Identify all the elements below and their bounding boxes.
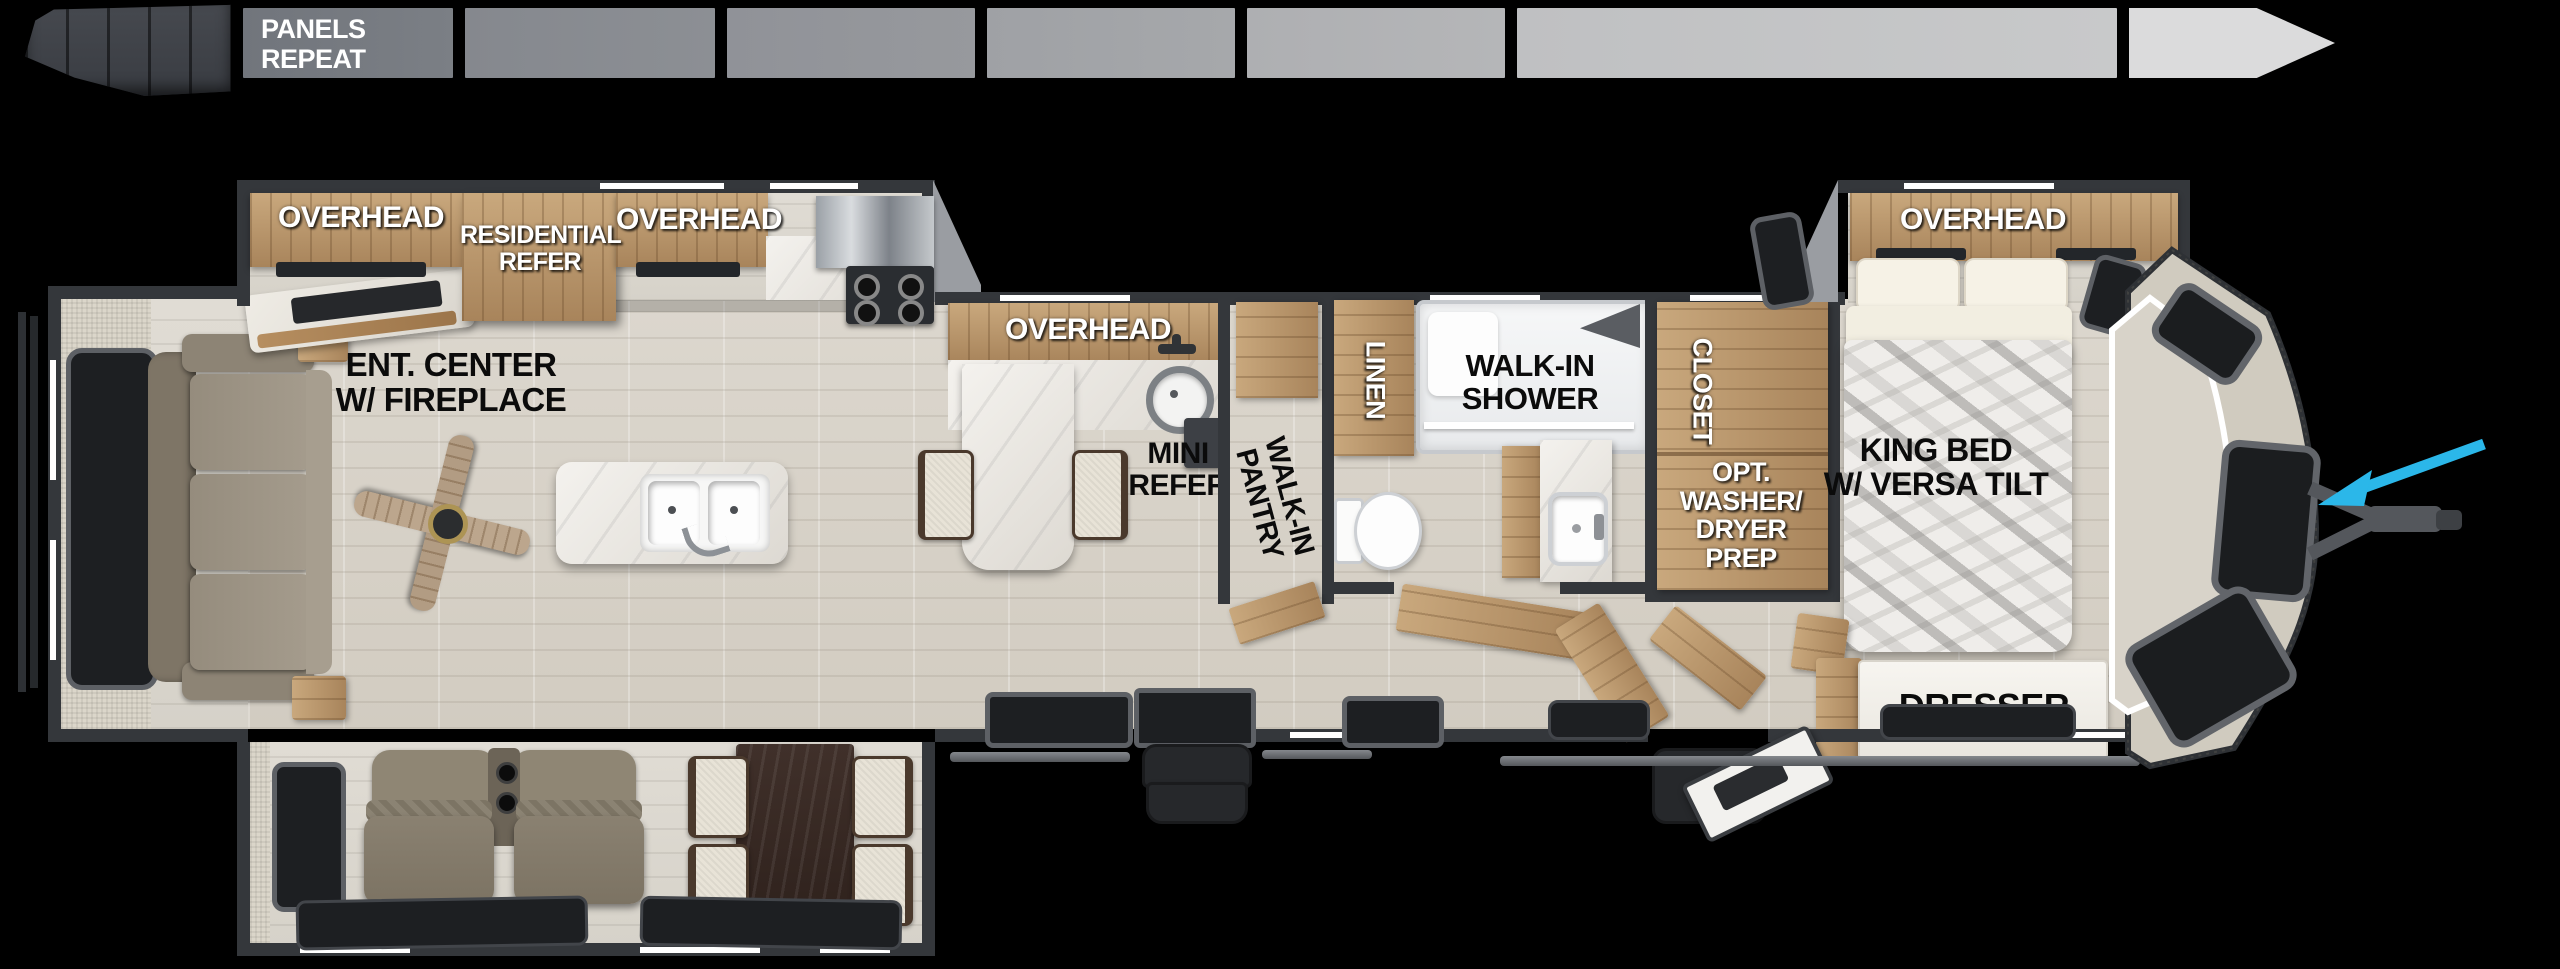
bath-wall-bottom <box>1322 582 1394 594</box>
entry-door-open <box>1681 725 1835 844</box>
walk-in-shower-label: WALK-IN SHOWER <box>1424 350 1636 416</box>
awning-bar <box>1500 756 2140 766</box>
cabinet-slot <box>276 262 426 277</box>
bed-pillow <box>1964 258 2068 312</box>
rear-wall-left <box>48 286 61 742</box>
closet-label-wrap: CLOSET <box>1676 316 1728 466</box>
wall-trim <box>640 947 760 953</box>
burner <box>898 274 924 300</box>
rear-window <box>66 348 158 690</box>
banner-segment <box>987 8 1235 78</box>
banner-segment <box>1517 8 2117 78</box>
banner-segment <box>1247 8 1505 78</box>
shower-glass <box>1424 422 1634 429</box>
closet-wall-bottom <box>1645 590 1840 602</box>
wall-trim <box>1000 295 1130 301</box>
ent-center-label: ENT. CENTER W/ FIREPLACE <box>320 348 582 418</box>
banner-segment <box>727 8 975 78</box>
linen-label: LINEN <box>1361 320 1390 440</box>
entry-steps <box>1146 782 1248 824</box>
slide-corner-wedge <box>933 180 981 302</box>
dining-chair <box>918 450 974 540</box>
walk-in-pantry-label: WALK-IN PANTRY <box>1222 410 1325 590</box>
peninsula-table <box>962 364 1074 570</box>
overhead-label-rear-right: OVERHEAD <box>616 204 768 236</box>
residential-refer-label: RESIDENTIAL REFER <box>460 222 620 275</box>
sink-drain <box>1572 524 1581 533</box>
front-cap-graphic <box>2060 170 2560 810</box>
dinette-chair <box>688 756 749 838</box>
burner <box>854 300 880 326</box>
shower-head-icon <box>1580 304 1640 348</box>
range-hood <box>816 196 934 268</box>
fan-hub <box>428 504 468 544</box>
dinette-chair <box>852 756 913 838</box>
sofa-back <box>148 352 196 682</box>
stove-cooktop <box>846 266 934 324</box>
dresser-side <box>1816 658 1862 758</box>
pantry-shelf <box>1236 302 1318 398</box>
sofa-cushion <box>190 374 312 470</box>
cabinet-slot <box>636 262 740 277</box>
bath-wall-bottom <box>1560 582 1657 594</box>
end-table <box>292 676 346 720</box>
burner <box>898 300 924 326</box>
panels-repeat-box: PANELS REPEAT <box>243 8 453 78</box>
rear-wall-top <box>48 286 248 299</box>
front-cap-panels-image <box>25 4 231 96</box>
sofa-cushion <box>190 474 312 570</box>
awning-bar <box>1262 750 1372 759</box>
sink-drain <box>1170 390 1178 398</box>
rear-bumper-bar <box>18 312 26 692</box>
bottom-slide-wall-left <box>237 742 250 956</box>
sink-drain <box>730 506 738 514</box>
seat-cushion <box>364 816 494 904</box>
wall-trim <box>600 183 724 189</box>
floor-mat <box>640 896 903 951</box>
vanity-cabinet <box>1502 446 1542 578</box>
bed-pillow <box>1856 258 1960 312</box>
seat-cushion <box>514 816 644 904</box>
banner-segment <box>465 8 715 78</box>
wall-trim <box>50 540 56 660</box>
linen-label-wrap: LINEN <box>1340 318 1410 442</box>
ceiling-fan-icon <box>352 428 542 618</box>
awning-bar <box>950 752 1130 762</box>
cup-holder <box>496 792 518 814</box>
closet-label: CLOSET <box>1688 321 1717 461</box>
entry-door-window <box>1134 688 1256 748</box>
bottom-slide-wall-right <box>922 742 935 956</box>
sink-drain <box>668 506 676 514</box>
burner <box>854 274 880 300</box>
island-sink <box>640 474 770 552</box>
king-bed-label: KING BED W/ VERSA TILT <box>1798 434 2074 502</box>
faucet-icon <box>1594 514 1604 540</box>
window <box>985 692 1133 748</box>
floorplan-screenshot: PANELS REPEAT ENT. CENTER W/ FIREPLACE <box>0 0 2560 969</box>
theater-seats <box>360 748 650 906</box>
overhead-label-rear-left: OVERHEAD <box>258 202 464 234</box>
rear-wall-bottom <box>48 729 248 742</box>
pantry-label-wrap: WALK-IN PANTRY <box>1224 402 1324 598</box>
slide-sidewall-panel <box>250 742 270 943</box>
overhead-label-bedroom: OVERHEAD <box>1888 204 2078 236</box>
wall-trim <box>50 360 56 480</box>
cup-holder <box>496 762 518 784</box>
floor-mat <box>1880 704 2076 740</box>
hitch-pointer-arrow <box>2318 444 2484 506</box>
floor-mat <box>1548 700 1650 740</box>
sofa-cushion <box>190 574 312 670</box>
overhead-label-kitchen: OVERHEAD <box>968 314 1208 346</box>
panels-repeat-label: PANELS REPEAT <box>261 14 421 74</box>
vanity-sink <box>1548 492 1608 566</box>
rear-bumper-bar <box>30 316 38 688</box>
slide-window <box>272 762 346 912</box>
banner-arrow <box>2129 8 2335 78</box>
wall-trim <box>1904 183 2054 189</box>
toilet-bowl <box>1354 492 1422 570</box>
wall-trim <box>770 183 858 189</box>
living-slide-wall-left <box>237 180 250 306</box>
window <box>1342 696 1444 748</box>
floor-mat <box>296 895 589 950</box>
sofa <box>148 348 332 686</box>
